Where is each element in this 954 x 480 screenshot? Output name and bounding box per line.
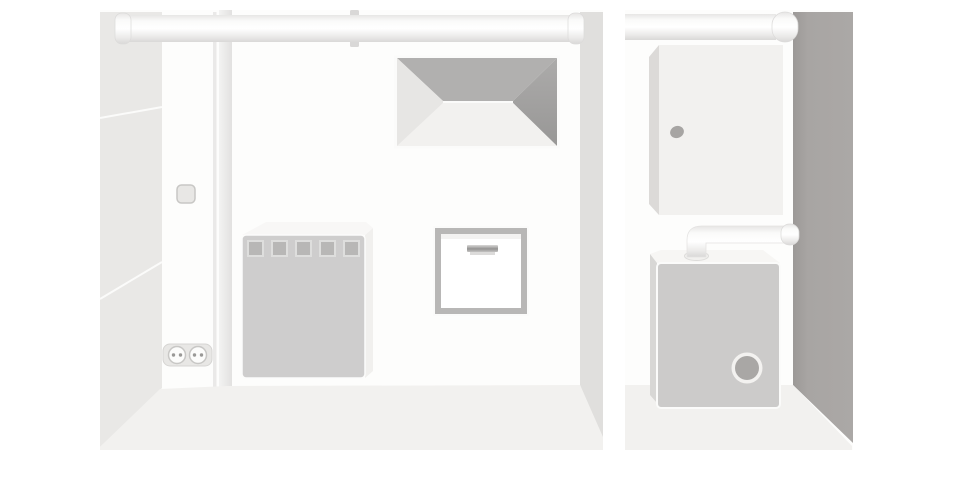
boiler-room-dark-wall <box>793 12 853 443</box>
left-wall-face <box>100 12 162 447</box>
burner-port <box>735 356 759 380</box>
vent-square <box>248 241 263 256</box>
double-power-outlet[interactable] <box>163 344 212 366</box>
access-panel-handle <box>467 245 498 252</box>
boiler-room-ceiling-pipe <box>625 12 798 42</box>
boiler-room-panel <box>625 10 853 450</box>
wall-fuse-cabinet[interactable] <box>649 45 783 215</box>
boiler-side-face <box>650 254 657 403</box>
boiler-top-face <box>650 250 780 263</box>
flue-end-cap <box>781 224 799 245</box>
laundry-room-panel <box>100 10 603 450</box>
pipe-body <box>122 15 578 42</box>
vent-square <box>272 241 287 256</box>
access-panel-inner-shadow <box>441 234 521 239</box>
laundry-left-wall <box>100 12 162 447</box>
vent-square <box>344 241 359 256</box>
light-switch[interactable] <box>177 185 195 203</box>
outlet-pin-hole <box>179 353 182 356</box>
laundry-right-wall <box>580 12 603 438</box>
access-panel-handle-base <box>470 252 495 255</box>
appliance-cabinet[interactable] <box>242 222 373 378</box>
recessed-wall-vent[interactable] <box>394 56 560 149</box>
illustration-canvas <box>0 0 954 480</box>
outlet-socket-left <box>169 347 186 364</box>
boiler-front-face <box>657 263 780 408</box>
laundry-floor <box>100 385 603 450</box>
wall-access-panel[interactable] <box>434 227 528 315</box>
wall-corner-line <box>213 12 217 390</box>
pipe-body <box>625 14 776 40</box>
pipe-end-cap-right <box>568 13 584 44</box>
wall-pilaster <box>219 10 232 390</box>
vent-square <box>320 241 335 256</box>
outlet-pin-hole <box>193 353 196 356</box>
pipe-end-cap <box>772 12 798 42</box>
outlet-pin-hole <box>172 353 175 356</box>
appliance-side-face <box>365 228 373 378</box>
cabinet-side-face <box>649 45 659 215</box>
outlet-pin-hole <box>200 353 203 356</box>
vent-square <box>296 241 311 256</box>
outlet-socket-right <box>190 347 207 364</box>
laundry-ceiling-pipe <box>115 10 584 47</box>
pipe-end-cap-left <box>115 13 131 44</box>
